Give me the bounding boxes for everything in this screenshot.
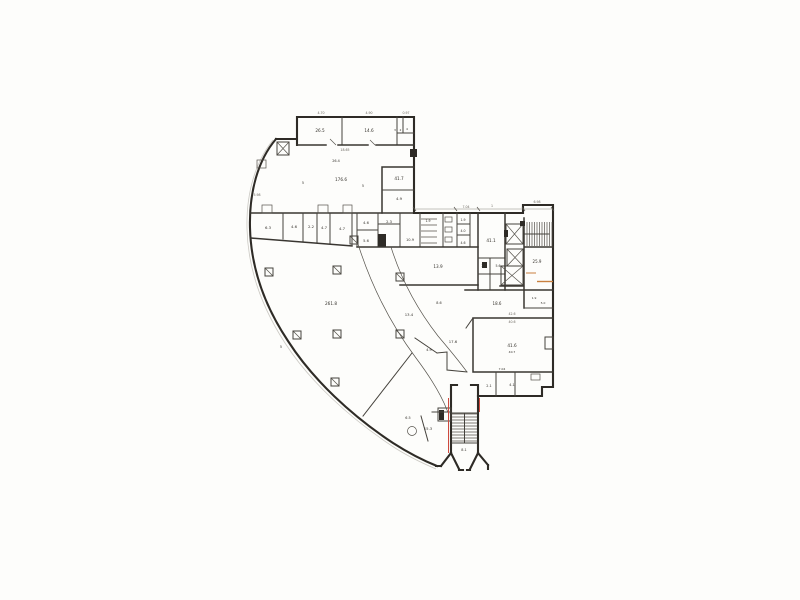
room-area-label: 26.4 [332,159,340,163]
room-area-label: 26.5 [315,128,325,133]
staircase-upper-icon [525,222,552,246]
room-area-label: 5 [280,345,282,349]
room-area-label: 13.9 [433,264,443,269]
room-area-label: 41.1 [486,238,496,243]
room-area-label: 41.6 [507,343,517,348]
room-area-label: 4.9 [426,348,431,352]
floor-plan-drawing: 26.514.632426.4176.65541.74.96.34.62.24.… [0,0,800,600]
room-area-label: 1.9 [460,218,465,222]
dimension-label: 0.97 [402,111,409,115]
room-area-label: 1.9 [425,219,430,223]
fixture-circle [408,427,417,436]
door-symbol [343,205,352,213]
room-area-label: 1.9 [532,296,537,300]
column-icon [331,378,339,386]
outer-walls [250,117,553,470]
room-area-label: 2.3 [386,220,392,224]
room-area-label: 5 [302,181,304,185]
room-area-label: 13.4 [405,312,414,317]
room-area-label: 4.7 [339,226,346,231]
room-area-label: 4.7 [321,225,328,230]
wall-pier [545,337,553,349]
room-area-label: 176.6 [335,177,347,182]
room-area-label: 15.3 [424,426,433,431]
room-area-label: 5 [362,184,364,188]
door-symbol [318,205,328,213]
column-icon [333,266,341,274]
room-area-label: 41.7 [394,176,404,181]
room-area-label: 2.3 [481,264,486,268]
dimension-line [413,207,554,211]
dimension-label: 4.90 [365,111,372,115]
central-service-core [357,213,478,290]
room-area-label: 17.6 [449,339,458,344]
dimension-label: 1 [491,204,493,208]
wall-pier [520,221,525,226]
column-icon [396,273,404,281]
room-area-label: 8.6 [436,301,441,305]
room-area-label: 7.04 [499,367,506,371]
room-area-label: 4.9 [396,196,403,201]
room-area-label: 261.8 [325,301,337,306]
inner-arc-a [358,244,449,414]
room-area-label: 8.1 [461,448,466,452]
column-icon [333,330,341,338]
room-area-label: 25.9 [533,259,542,264]
elevator-icon [506,224,523,244]
staircase-lower-icon [438,408,477,443]
room-area-label: 40.7 [509,350,516,354]
room-area-label: 5.6 [363,239,369,243]
dimension-label: 40.6 [508,320,515,324]
room-area-label: 2.2 [308,224,315,229]
room-area-label: 5.6 [495,264,500,268]
room-area-label: 6.5 [405,416,410,420]
room-area-label: 18.6 [493,301,502,306]
wall-pier [410,149,417,157]
structural-columns [265,236,404,386]
duct-shaft-filled [378,234,386,247]
room-area-label: 6.3 [265,225,272,230]
stair-shaft-walls [436,385,488,470]
dimension-label: 6.98 [533,200,540,204]
scanned-floor-plan-sheet: 26.514.632426.4176.65541.74.96.34.62.24.… [0,0,800,600]
dimension-label: 18.65 [340,148,349,152]
room-area-label: 4.6 [460,241,465,245]
column-icon [396,330,404,338]
room-area-label: 2.1 [486,384,491,388]
room-area-label: 5.0 [541,301,546,305]
dimension-label: 7.04 [462,205,469,209]
wall-pier [531,374,540,380]
dimension-label: 4.70 [317,111,324,115]
room-area-label: 4.1 [509,383,514,387]
room-area-label: 4 [406,127,408,131]
room-area-label: 4.6 [363,221,369,225]
door-symbol [262,205,272,213]
dimension-label: 42.6 [508,312,515,316]
room-area-label: 10.9 [406,238,415,242]
column-icon [265,268,273,276]
dimension-label: 5.98 [253,193,260,197]
room-area-label: 2 [400,128,402,132]
room-area-label: 4.6 [291,224,298,229]
column-icon [293,331,301,339]
wall-pier [504,230,508,237]
room-area-label: 3 [394,128,396,132]
inner-arc-b [391,247,467,372]
room-area-label: 14.6 [364,128,374,133]
elevator-icon [507,249,523,266]
room-area-label: 4.0 [460,229,465,233]
